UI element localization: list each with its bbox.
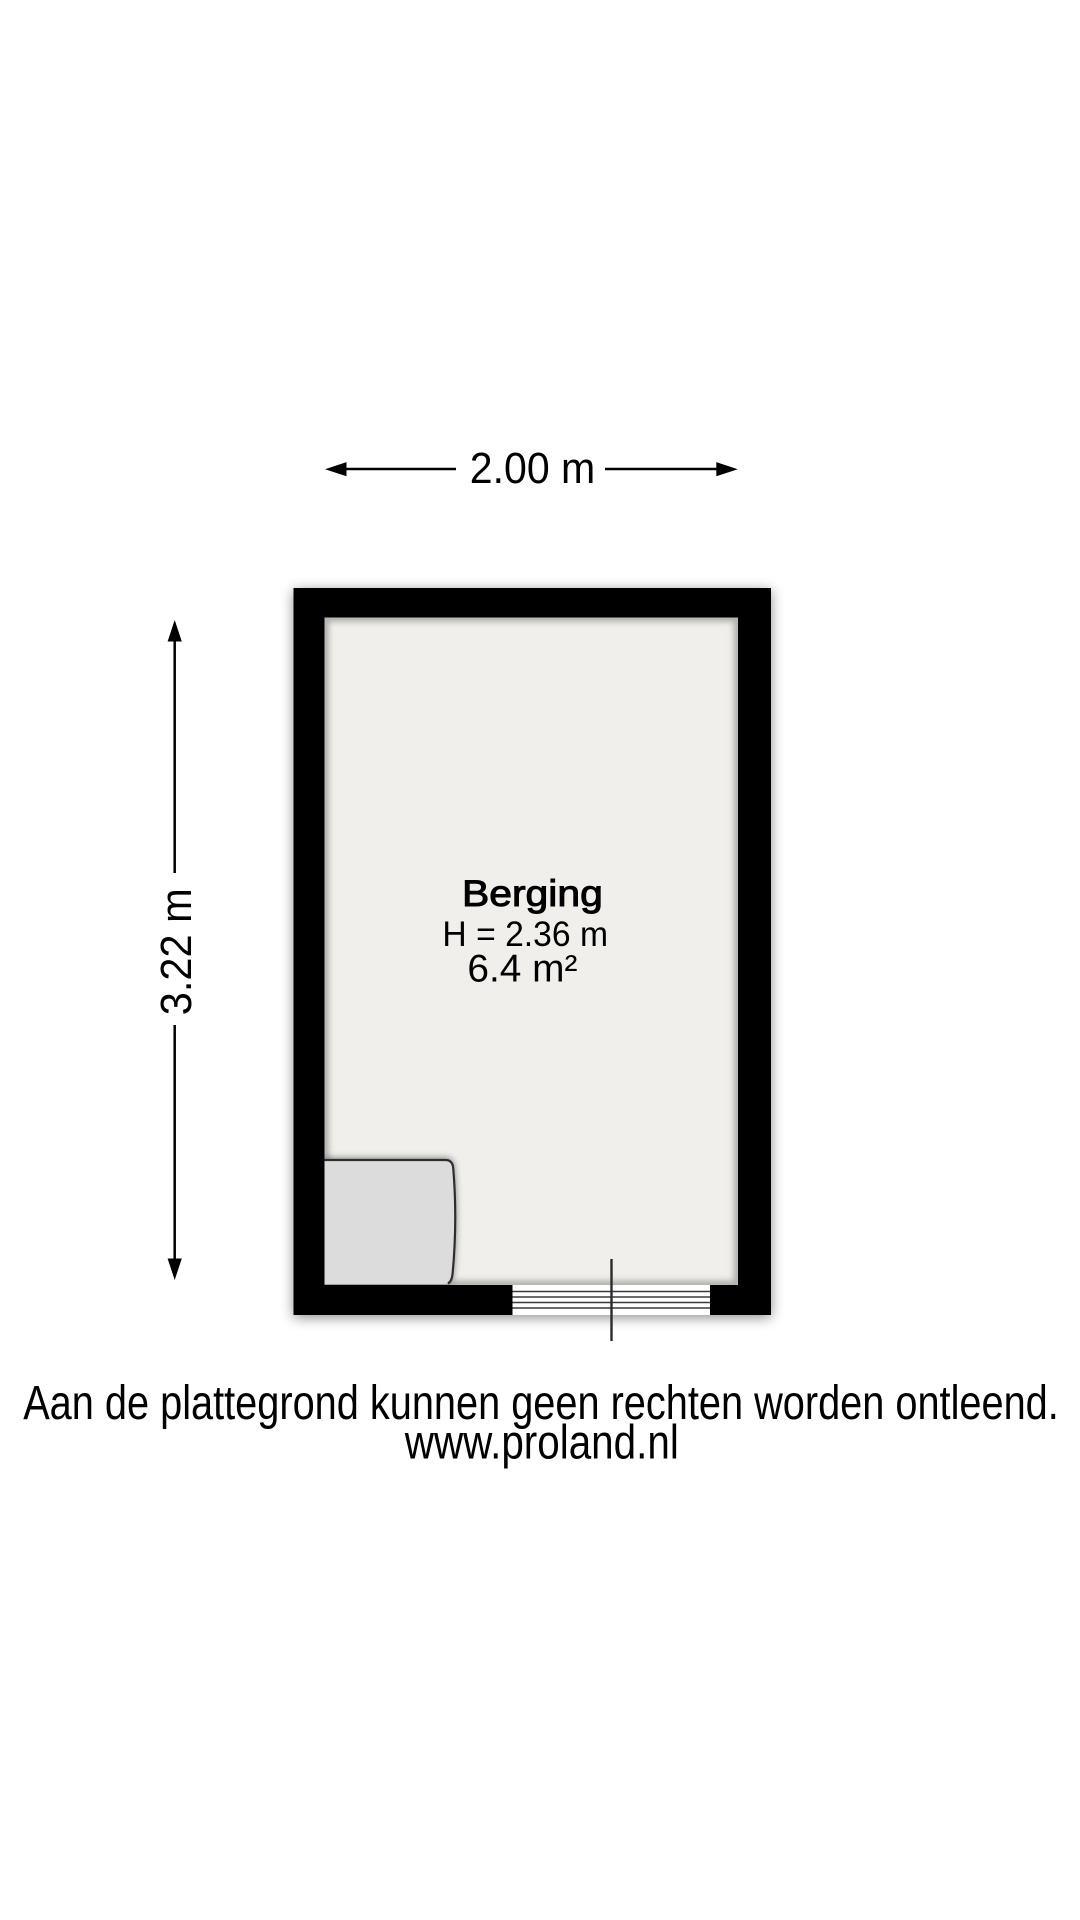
svg-text:6.4 m²: 6.4 m² (467, 948, 577, 991)
svg-text:3.22 m: 3.22 m (152, 888, 201, 1015)
svg-text:www.proland.nl: www.proland.nl (404, 1417, 679, 1470)
svg-text:2.00 m: 2.00 m (470, 444, 595, 492)
svg-text:Berging: Berging (462, 874, 603, 915)
